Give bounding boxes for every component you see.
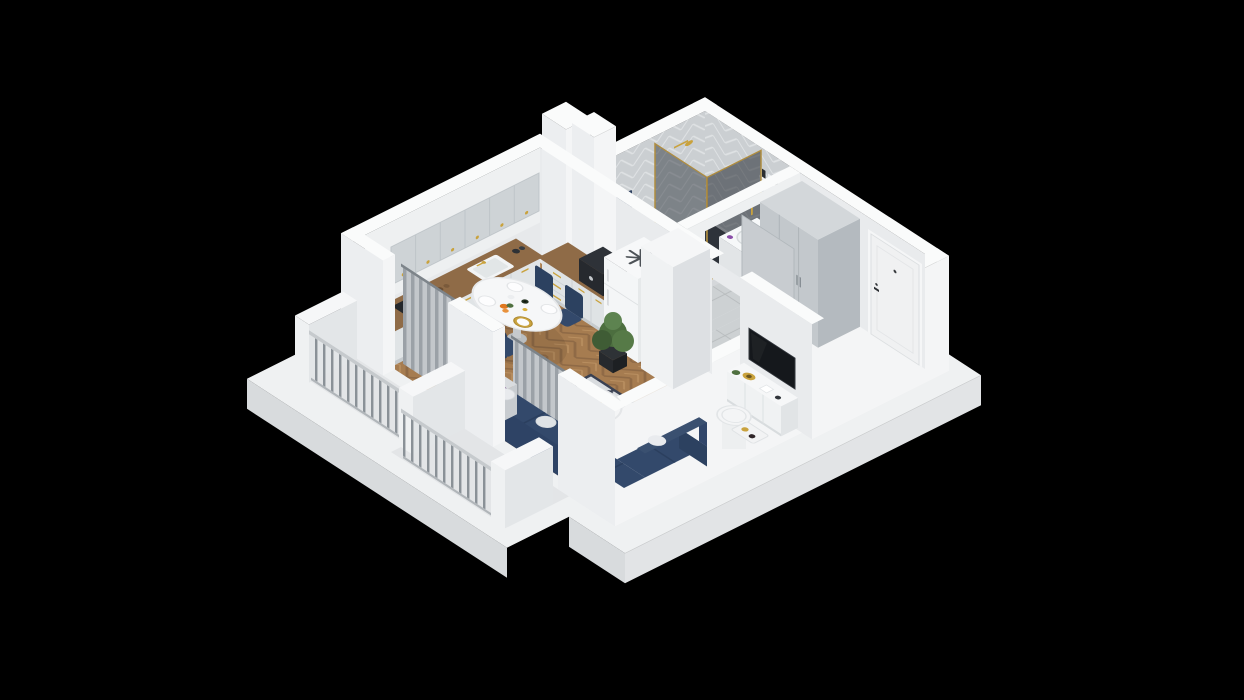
tall-cabinet (641, 228, 710, 389)
window-jamb (383, 255, 395, 376)
wardrobe-handle (796, 275, 797, 286)
floorplan-canvas: 3D isometric cutaway floor plan of a stu… (0, 0, 1244, 700)
tall-cabinet-front (641, 246, 673, 389)
wardrobe-handle (800, 277, 801, 288)
pier-front (491, 461, 505, 528)
fridge-handle (607, 269, 609, 282)
window-jamb (493, 326, 505, 447)
fridge-handle (607, 289, 609, 306)
tall-cabinet-side (673, 249, 710, 390)
pier-front (295, 316, 309, 383)
wardrobe-side (818, 219, 860, 348)
floorplan-3d-render: 3D isometric cutaway floor plan of a stu… (0, 0, 1244, 700)
